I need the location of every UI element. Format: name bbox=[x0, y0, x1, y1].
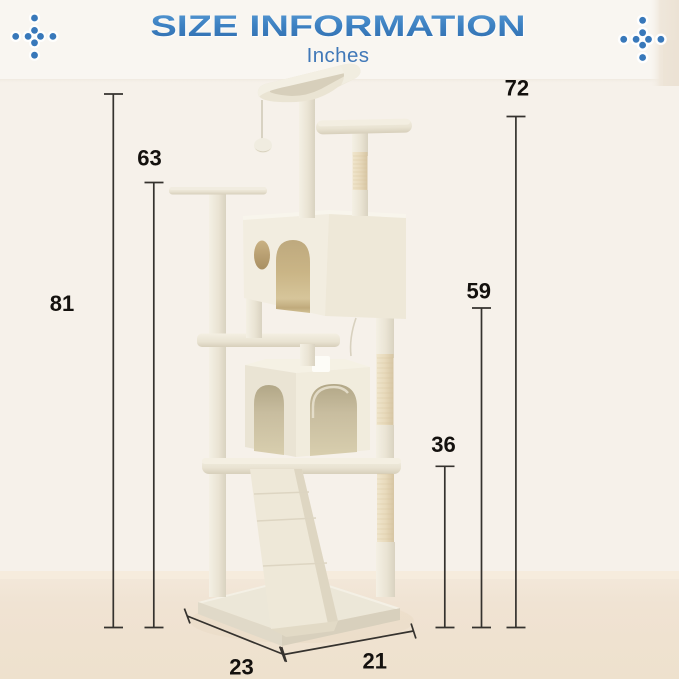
svg-text:Inches: Inches bbox=[307, 44, 370, 67]
svg-text:59: 59 bbox=[466, 279, 490, 304]
svg-text:23: 23 bbox=[229, 655, 253, 679]
svg-text:63: 63 bbox=[137, 146, 161, 171]
svg-text:SIZE INFORMATION: SIZE INFORMATION bbox=[150, 10, 525, 43]
svg-text:81: 81 bbox=[50, 291, 74, 316]
svg-text:21: 21 bbox=[363, 649, 387, 674]
svg-text:36: 36 bbox=[431, 432, 455, 457]
svg-text:72: 72 bbox=[505, 75, 529, 100]
